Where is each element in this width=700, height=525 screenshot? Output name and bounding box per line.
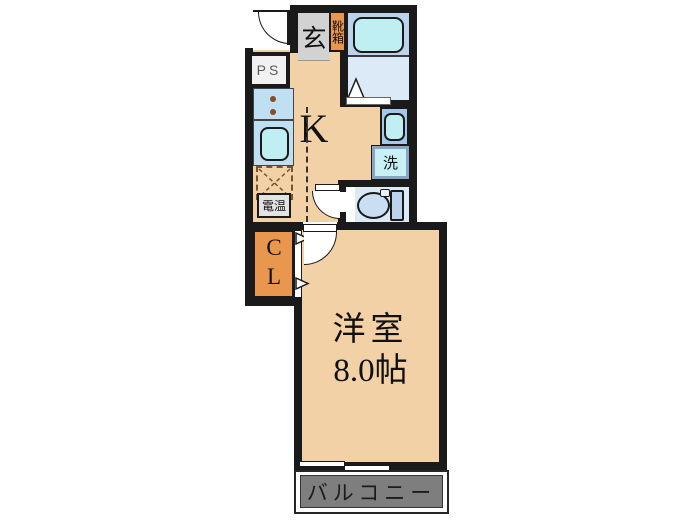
toilet-lid-icon [380, 189, 390, 197]
closet-door-arrow-icon [294, 276, 310, 291]
shoe-box: 靴箱 [329, 11, 346, 52]
wall-genkan-stub [290, 13, 298, 53]
floorplan: 玄 靴箱 PS 電温 [0, 0, 700, 525]
washbasin [380, 107, 409, 146]
balcony-deck: バルコニー [300, 475, 443, 508]
stove-counter [253, 88, 294, 120]
bath-threshold [346, 97, 391, 105]
toilet-threshold [346, 187, 355, 222]
bathtub [353, 17, 404, 53]
entry-door-swing [258, 12, 290, 44]
balcony-label: バルコニー [307, 477, 437, 507]
washer-label: 洗 [383, 152, 398, 173]
wall-top [290, 5, 417, 13]
kitchen-label: K [292, 103, 336, 153]
wall-right-upper [409, 5, 417, 230]
kitchen-divider-line [306, 107, 308, 222]
entrance-label: 玄 [301, 19, 326, 55]
wall-room-right [439, 222, 447, 470]
shoe-box-label: 靴箱 [332, 20, 344, 44]
room-name-label: 洋室 [302, 306, 439, 346]
water-heater-label: 電温 [262, 197, 286, 214]
burner-icon [270, 109, 276, 115]
burner-icon [270, 96, 276, 102]
water-heater: 電温 [257, 193, 291, 218]
pipe-space-label: PS [257, 62, 282, 78]
washer-space: 洗 [372, 146, 409, 179]
sliding-window-pane [299, 461, 345, 467]
wall-band-left [245, 222, 303, 230]
pipe-space: PS [248, 52, 290, 88]
sink-icon [260, 127, 289, 161]
closet-label: CL [261, 235, 287, 293]
toilet-door-leaf [315, 184, 340, 191]
washbasin-bowl-icon [384, 113, 405, 141]
room-door-leaf [303, 224, 337, 232]
wall-band-right [337, 222, 447, 230]
closet: CL [253, 230, 294, 298]
entry-door-leaf [287, 12, 290, 45]
room-size-label: 8.0帖 [302, 347, 439, 387]
sink-counter [253, 120, 294, 166]
toilet-tank-icon [390, 190, 404, 221]
wall-toilet-top [338, 180, 417, 187]
wall-room-left [294, 298, 302, 470]
genkan-tile: 玄 [298, 13, 330, 61]
